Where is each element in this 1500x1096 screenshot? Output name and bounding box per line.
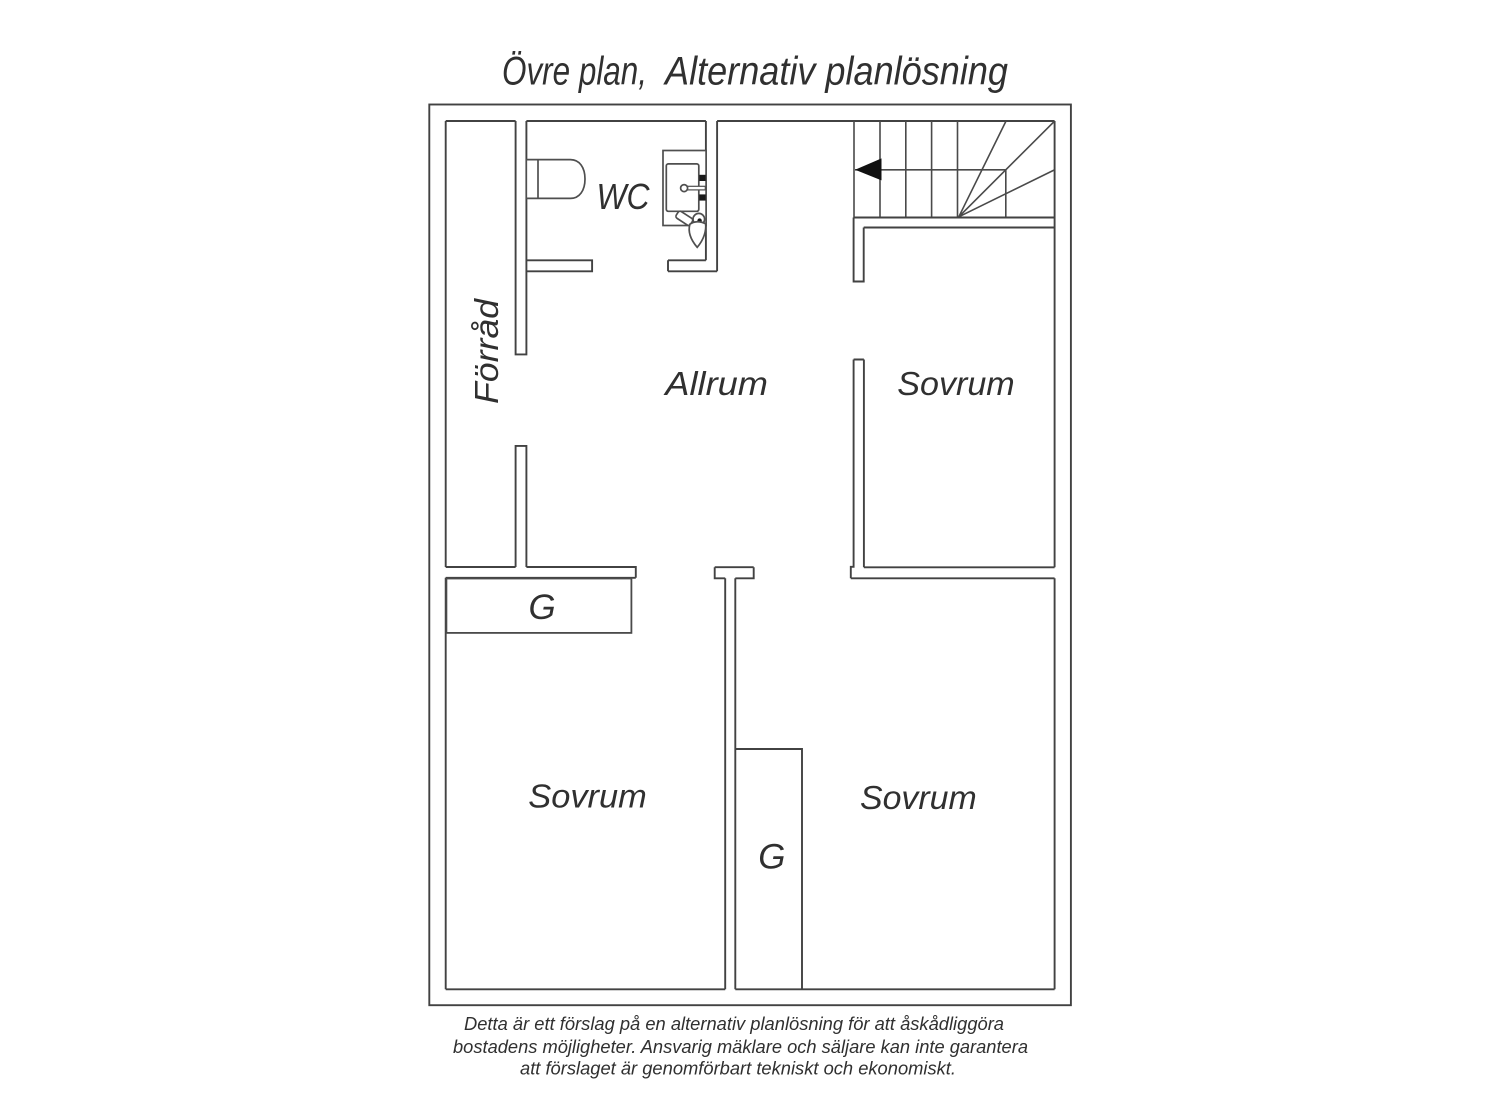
svg-text:Sovrum: Sovrum [897, 365, 1014, 402]
svg-text:G: G [758, 837, 785, 876]
svg-text:Övre plan,: Övre plan, [502, 50, 647, 94]
svg-text:bostadens möjligheter. Ansvari: bostadens möjligheter. Ansvarig mäklare … [453, 1036, 1028, 1057]
svg-text:att förslaget är genomförbart: att förslaget är genomförbart tekniskt o… [520, 1058, 956, 1079]
svg-text:Förråd: Förråd [468, 297, 505, 404]
svg-text:Detta är ett förslag på en alt: Detta är ett förslag på en alternativ pl… [464, 1013, 1004, 1034]
svg-text:Sovrum: Sovrum [860, 779, 977, 816]
svg-text:Allrum: Allrum [663, 365, 768, 402]
svg-text:G: G [529, 588, 556, 627]
svg-text:WC: WC [597, 176, 651, 217]
svg-text:Alternativ planlösning: Alternativ planlösning [663, 50, 1008, 94]
svg-text:Sovrum: Sovrum [528, 777, 646, 814]
